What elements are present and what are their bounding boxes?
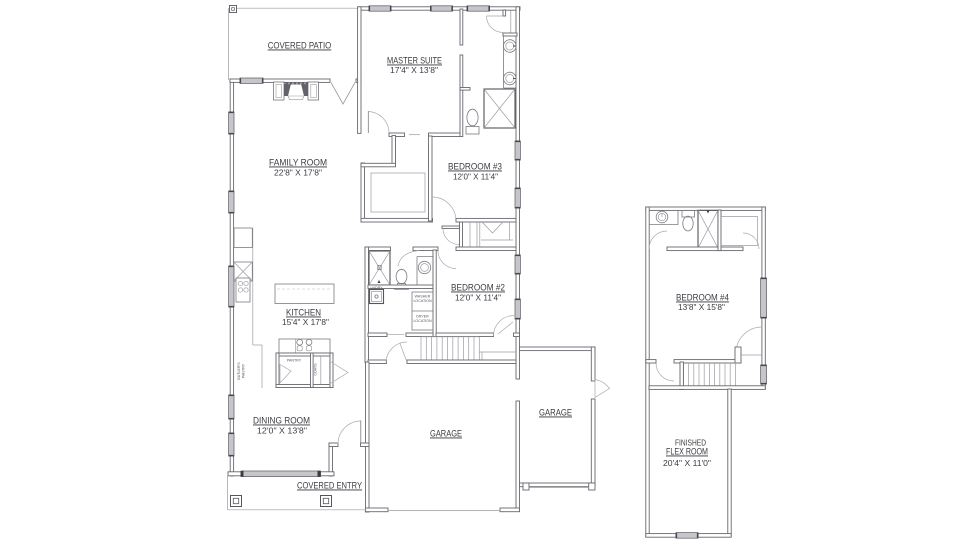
svg-text:BEDROOM #3: BEDROOM #3 — [448, 162, 502, 172]
svg-text:LOCATION: LOCATION — [413, 299, 432, 303]
svg-text:COATS: COATS — [314, 363, 318, 376]
svg-text:LNDRY: LNDRY — [370, 286, 383, 290]
svg-text:FAMILY ROOM: FAMILY ROOM — [269, 158, 327, 168]
svg-text:PANTRY: PANTRY — [287, 359, 302, 363]
svg-text:15'4" X 17'8": 15'4" X 17'8" — [282, 317, 329, 327]
svg-text:13'8" X 15'8": 13'8" X 15'8" — [678, 302, 725, 312]
svg-text:FLEX ROOM: FLEX ROOM — [666, 447, 708, 457]
svg-text:17'4" X 13'8": 17'4" X 13'8" — [390, 65, 438, 75]
svg-text:COVERED ENTRY: COVERED ENTRY — [297, 481, 362, 491]
svg-text:COVERED PATIO: COVERED PATIO — [268, 41, 332, 51]
svg-text:BEDROOM #4: BEDROOM #4 — [676, 293, 729, 303]
svg-text:12'0" X 11'4": 12'0" X 11'4" — [455, 293, 501, 303]
svg-text:12'0" X 11'4": 12'0" X 11'4" — [453, 172, 498, 182]
svg-text:BEDROOM #2: BEDROOM #2 — [451, 283, 505, 293]
svg-text:PANTRY: PANTRY — [242, 363, 246, 378]
svg-text:BUTLER'S: BUTLER'S — [237, 362, 241, 380]
svg-text:20'4" X 11'0": 20'4" X 11'0" — [663, 458, 711, 468]
svg-text:GARAGE: GARAGE — [539, 408, 572, 418]
svg-text:22'8" X 17'8": 22'8" X 17'8" — [274, 168, 322, 178]
svg-text:DINING ROOM: DINING ROOM — [253, 416, 310, 426]
svg-text:LOCATION: LOCATION — [413, 319, 432, 323]
svg-text:KITCHEN: KITCHEN — [286, 308, 321, 318]
svg-text:12'0" X 13'8": 12'0" X 13'8" — [257, 426, 307, 436]
svg-text:GARAGE: GARAGE — [430, 429, 462, 439]
svg-text:MASTER SUITE: MASTER SUITE — [387, 56, 442, 66]
